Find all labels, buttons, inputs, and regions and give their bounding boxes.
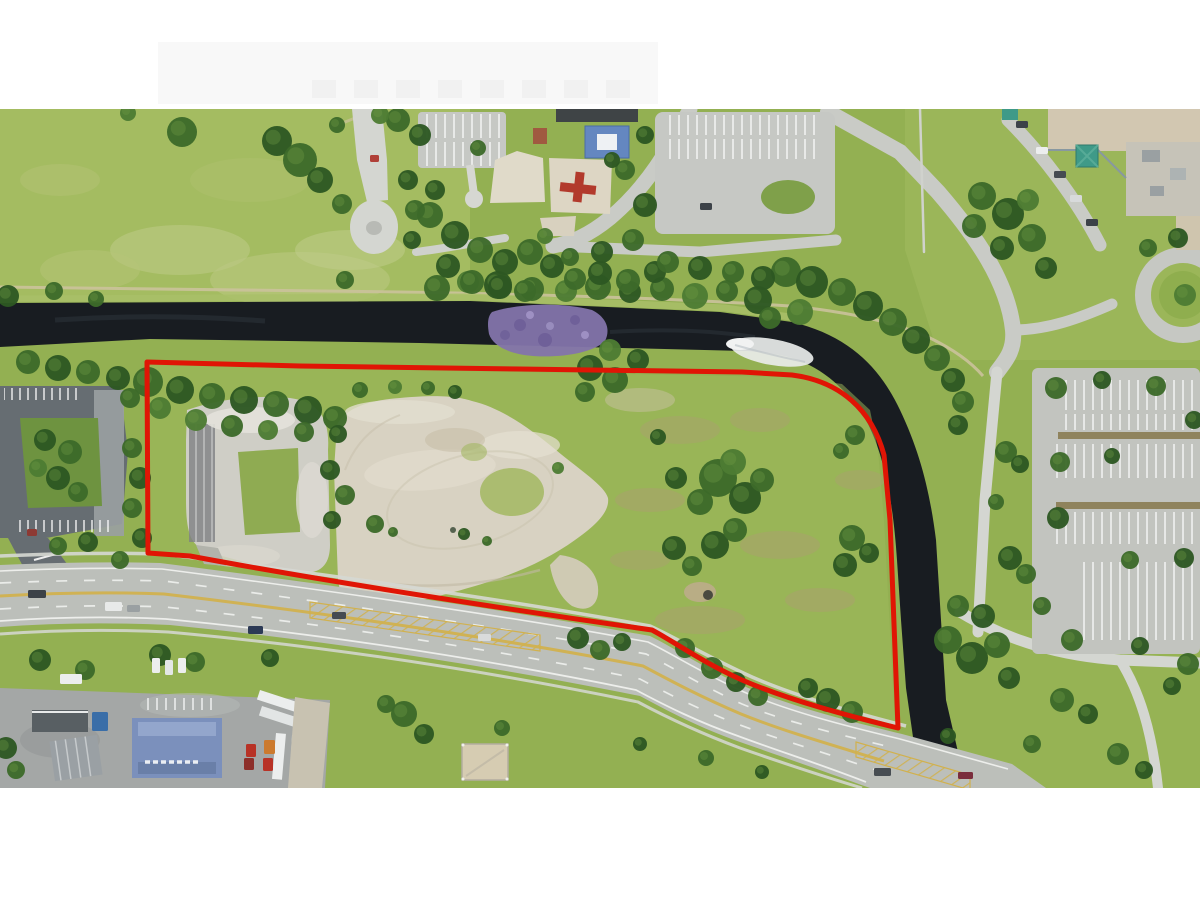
tree-crown-highlight: [373, 108, 382, 117]
tree-crown-highlight: [563, 250, 572, 259]
dirt-circle: [684, 582, 716, 602]
tree-crown-highlight: [665, 539, 677, 551]
tree-crown-highlight: [635, 739, 642, 746]
tree-crown-highlight: [51, 539, 60, 548]
tree-crown-highlight: [862, 546, 872, 556]
tree-crown-highlight: [450, 387, 457, 394]
tree-crown-highlight: [944, 371, 956, 383]
vehicle: [370, 155, 379, 162]
tree-crown-highlight: [1025, 737, 1034, 746]
tree-crown-highlight: [0, 288, 11, 299]
tree-crown-highlight: [109, 369, 121, 381]
tree-crown-highlight: [539, 230, 547, 238]
tree-crown-highlight: [1038, 260, 1049, 271]
tree-crown-highlight: [543, 257, 555, 269]
truck-yard: [0, 688, 330, 788]
real-estate-listing-photo: [0, 0, 1200, 900]
tree-crown-highlight: [719, 283, 730, 294]
tree-crown-highlight: [470, 240, 483, 253]
tree-crown-highlight: [298, 400, 312, 414]
tree-crown-highlight: [1035, 599, 1044, 608]
tree-crown-highlight: [338, 273, 347, 282]
tree-crown-highlight: [335, 197, 345, 207]
tree-crown-highlight: [310, 170, 323, 183]
tree-crown-highlight: [78, 663, 88, 673]
tree-crown-highlight: [1020, 192, 1031, 203]
tree-crown-highlight: [938, 630, 952, 644]
tree-crown-highlight: [942, 730, 950, 738]
aerial-photo: [0, 105, 1200, 790]
tree-crown-highlight: [832, 282, 846, 296]
tree-crown-highlight: [591, 264, 603, 276]
tree-crown-highlight: [368, 517, 377, 526]
tree-crown-highlight: [960, 646, 976, 662]
tree-crown-highlight: [1053, 691, 1065, 703]
teal-structure-small: [1002, 109, 1018, 120]
tree-crown-highlight: [647, 264, 658, 275]
vehicle: [264, 740, 275, 754]
tree-crown-highlight: [704, 464, 723, 483]
tree-crown-highlight: [606, 154, 614, 162]
tree-crown-highlight: [1165, 679, 1174, 688]
tree-crown-highlight: [323, 463, 333, 473]
tree-crown-highlight: [578, 385, 588, 395]
tree-crown-highlight: [1106, 450, 1114, 458]
tree-crown-highlight: [417, 727, 427, 737]
vehicle: [92, 712, 108, 731]
tree-crown-highlight: [331, 427, 340, 436]
tree-crown-highlight: [1013, 457, 1022, 466]
tree-crown-highlight: [998, 444, 1009, 455]
tree-crown-highlight: [1110, 746, 1121, 757]
tree-crown-highlight: [412, 127, 423, 138]
tree-crown-highlight: [570, 630, 581, 641]
tree-crown-highlight: [1048, 380, 1059, 391]
tree-crown-highlight: [428, 183, 438, 193]
tree-crown-highlight: [748, 290, 762, 304]
field-upper-left: [0, 109, 470, 308]
tree-crown-highlight: [483, 537, 488, 542]
tree-crown-highlight: [125, 441, 135, 451]
warehouse-dark-roof: [32, 710, 88, 732]
tree-crown-highlight: [1171, 231, 1181, 241]
tree-crown-highlight: [113, 553, 122, 562]
tree-crown-highlight: [987, 635, 1000, 648]
vehicle: [958, 772, 973, 779]
hedge-row: [1058, 432, 1200, 439]
tree-crown-highlight: [132, 470, 143, 481]
tree-crown-highlight: [996, 202, 1012, 218]
tree-crown-highlight: [31, 461, 40, 470]
vehicle: [152, 658, 160, 673]
tree-crown-highlight: [71, 485, 81, 495]
tree-crown-highlight: [1137, 763, 1146, 772]
tree-crown-highlight: [593, 643, 603, 653]
tree-crown-highlight: [135, 531, 145, 541]
tree-crown-highlight: [726, 521, 738, 533]
tree-crown-highlight: [618, 163, 628, 173]
tree-crown-highlight: [379, 697, 388, 706]
tree-crown-highlight: [567, 271, 578, 282]
tree-crown-highlight: [408, 203, 418, 213]
tree-crown-highlight: [594, 244, 605, 255]
vehicle: [478, 634, 491, 641]
tree-crown-highlight: [754, 269, 766, 281]
tree-crown-highlight: [266, 130, 281, 145]
vehicle: [1054, 171, 1066, 178]
tree-crown-highlight: [685, 559, 695, 569]
hedge-row: [1056, 502, 1200, 509]
tree-crown-highlight: [775, 261, 790, 276]
watermark-artifact: [158, 42, 658, 104]
tree-crown-highlight: [496, 722, 504, 730]
tree-crown-highlight: [224, 418, 235, 429]
tree-crown-highlight: [463, 273, 475, 285]
tree-crown-highlight: [1081, 707, 1091, 717]
tree-crown-highlight: [636, 196, 648, 208]
tree-crown-highlight: [690, 492, 703, 505]
tree-crown-highlight: [762, 310, 773, 321]
tree-crown-highlight: [9, 763, 18, 772]
tree-crown-highlight: [261, 423, 271, 433]
tree-crown-highlight: [48, 358, 61, 371]
vehicle: [105, 602, 122, 611]
tree-crown-highlight: [1001, 670, 1012, 681]
tree-crown-highlight: [297, 425, 307, 435]
tree-crown-highlight: [965, 217, 977, 229]
tree-crown-highlight: [170, 380, 184, 394]
playground-sand-west: [490, 151, 545, 203]
tree-crown-highlight: [325, 513, 334, 522]
tree-crown-highlight: [1019, 567, 1029, 577]
tree-crown-highlight: [81, 535, 91, 545]
tree-crown-highlight: [951, 418, 961, 428]
tree-crown-highlight: [723, 452, 736, 465]
tree-crown-highlight: [202, 386, 215, 399]
tree-crown-highlight: [990, 496, 998, 504]
tree-crown-highlight: [389, 111, 401, 123]
warehouse-metal-roof: [49, 735, 102, 781]
vehicle: [246, 744, 256, 757]
vehicle: [874, 768, 891, 776]
tree-crown-highlight: [619, 272, 631, 284]
tree-crown-highlight: [668, 470, 679, 481]
tree-crown-highlight: [234, 390, 248, 404]
tree-crown-highlight: [993, 239, 1005, 251]
vehicle: [1036, 147, 1048, 154]
tree-crown-highlight: [439, 257, 451, 269]
vehicle: [248, 626, 263, 634]
tree-crown-highlight: [1050, 510, 1061, 521]
tree-crown-highlight: [1053, 455, 1063, 465]
tree-crown-highlight: [263, 651, 272, 660]
tree-crown-highlight: [1123, 553, 1132, 562]
tree-crown-highlight: [842, 528, 855, 541]
tree-crown-highlight: [652, 431, 660, 439]
tree-crown-highlight: [1133, 639, 1142, 648]
tree-crown-highlight: [602, 342, 613, 353]
tree-crown-highlight: [423, 383, 430, 390]
tree-crown-highlight: [638, 128, 647, 137]
tree-crown-highlight: [520, 242, 533, 255]
tree-crown-highlight: [125, 501, 135, 511]
tree-crown-highlight: [287, 147, 304, 164]
tree-crown-highlight: [152, 400, 163, 411]
tree-crown-highlight: [47, 284, 56, 293]
tree-crown-highlight: [790, 302, 803, 315]
tree-crown-highlight: [848, 428, 858, 438]
tree-crown-highlight: [495, 252, 508, 265]
tree-crown-highlight: [188, 412, 199, 423]
tree-crown-highlight: [517, 283, 528, 294]
tree-crown-highlight: [691, 259, 703, 271]
tree-crown-highlight: [757, 767, 764, 774]
tree-crown-highlight: [800, 270, 816, 286]
tree-crown-highlight: [753, 471, 765, 483]
tree-crown-highlight: [1177, 287, 1188, 298]
vehicle: [332, 612, 346, 619]
tree-crown-highlight: [37, 432, 48, 443]
tree-crown-highlight: [338, 488, 348, 498]
tree-crown-highlight: [836, 556, 848, 568]
tree-crown-highlight: [955, 394, 966, 405]
purple-vegetation-mat: [488, 305, 607, 357]
tree-crown-highlight: [857, 295, 872, 310]
tree-crown-highlight: [171, 121, 186, 136]
tree-crown-highlight: [401, 173, 411, 183]
tree-crown-highlight: [554, 464, 560, 470]
tree-crown-highlight: [906, 330, 920, 344]
tree-crown-highlight: [32, 652, 43, 663]
tree-crown-highlight: [927, 348, 940, 361]
vehicle: [127, 605, 140, 612]
tree-crown-highlight: [61, 443, 73, 455]
vehicle: [1016, 121, 1028, 128]
climbing-structure: [533, 128, 547, 144]
vehicle: [27, 529, 37, 536]
tree-crown-highlight: [389, 528, 394, 533]
tree-crown-highlight: [19, 353, 31, 365]
tree-crown-highlight: [331, 119, 339, 127]
vehicle: [1086, 219, 1098, 226]
tree-crown-highlight: [152, 647, 163, 658]
vehicle: [244, 758, 254, 770]
dark-shade-structure: [556, 109, 638, 122]
tree-crown-highlight: [705, 535, 719, 549]
tree-crown-highlight: [950, 598, 961, 609]
tree-crown-highlight: [685, 286, 698, 299]
tree-crown-highlight: [1180, 656, 1191, 667]
tree-crown-highlight: [974, 607, 986, 619]
tree-crown-highlight: [90, 293, 98, 301]
tree-crown-highlight: [1149, 379, 1159, 389]
tree-crown-highlight: [819, 691, 831, 703]
blue-roof-building: [132, 718, 222, 778]
tree-crown-highlight: [394, 704, 407, 717]
tree-crown-highlight: [660, 254, 671, 265]
tree-crown-highlight: [427, 278, 440, 291]
tree-crown-highlight: [733, 486, 749, 502]
tree-crown-highlight: [751, 689, 761, 699]
tree-crown-highlight: [625, 232, 636, 243]
tree-crown-highlight: [326, 409, 338, 421]
tree-crown-highlight: [188, 655, 198, 665]
fenced-sand-pit: [462, 744, 509, 781]
tree-crown-highlight: [1141, 241, 1150, 250]
tree-crown-highlight: [1187, 413, 1196, 422]
bottom-white-band: [0, 788, 1200, 900]
tree-crown-highlight: [354, 384, 362, 392]
tree-crown-highlight: [725, 264, 736, 275]
tree-crown-highlight: [445, 225, 459, 239]
pavilion-blue-roof: [585, 126, 629, 158]
tree-crown-highlight: [972, 186, 986, 200]
tree-crown-highlight: [266, 394, 279, 407]
tree-crown-highlight: [1177, 551, 1187, 561]
vehicle: [700, 203, 712, 210]
tree-crown-highlight: [1095, 373, 1104, 382]
vehicle: [165, 660, 173, 675]
tree-crown-highlight: [472, 142, 480, 150]
tree-crown-highlight: [123, 391, 133, 401]
parking-lot-mid: [655, 112, 835, 234]
tree-crown-highlight: [615, 635, 624, 644]
tree-crown-highlight: [390, 382, 397, 389]
tree-crown-highlight: [700, 752, 708, 760]
tree-crown-highlight: [801, 681, 811, 691]
tree-crown-highlight: [1001, 549, 1013, 561]
tree-crown-highlight: [1022, 228, 1036, 242]
vehicle: [60, 674, 82, 684]
tree-crown-highlight: [491, 278, 503, 290]
tree-crown-highlight: [49, 469, 61, 481]
tree-crown-highlight: [835, 445, 843, 453]
tree-crown-highlight: [79, 363, 91, 375]
tree-crown-highlight: [405, 233, 414, 242]
vehicle: [28, 590, 46, 598]
tree-crown-highlight: [1064, 632, 1075, 643]
teal-pyramid-roof: [1076, 145, 1098, 167]
tree-crown-highlight: [630, 352, 641, 363]
tree-crown-highlight: [883, 312, 897, 326]
vehicle: [178, 658, 186, 673]
vehicle: [263, 758, 273, 771]
vehicle: [1070, 195, 1082, 202]
tree-crown-highlight: [460, 530, 466, 536]
